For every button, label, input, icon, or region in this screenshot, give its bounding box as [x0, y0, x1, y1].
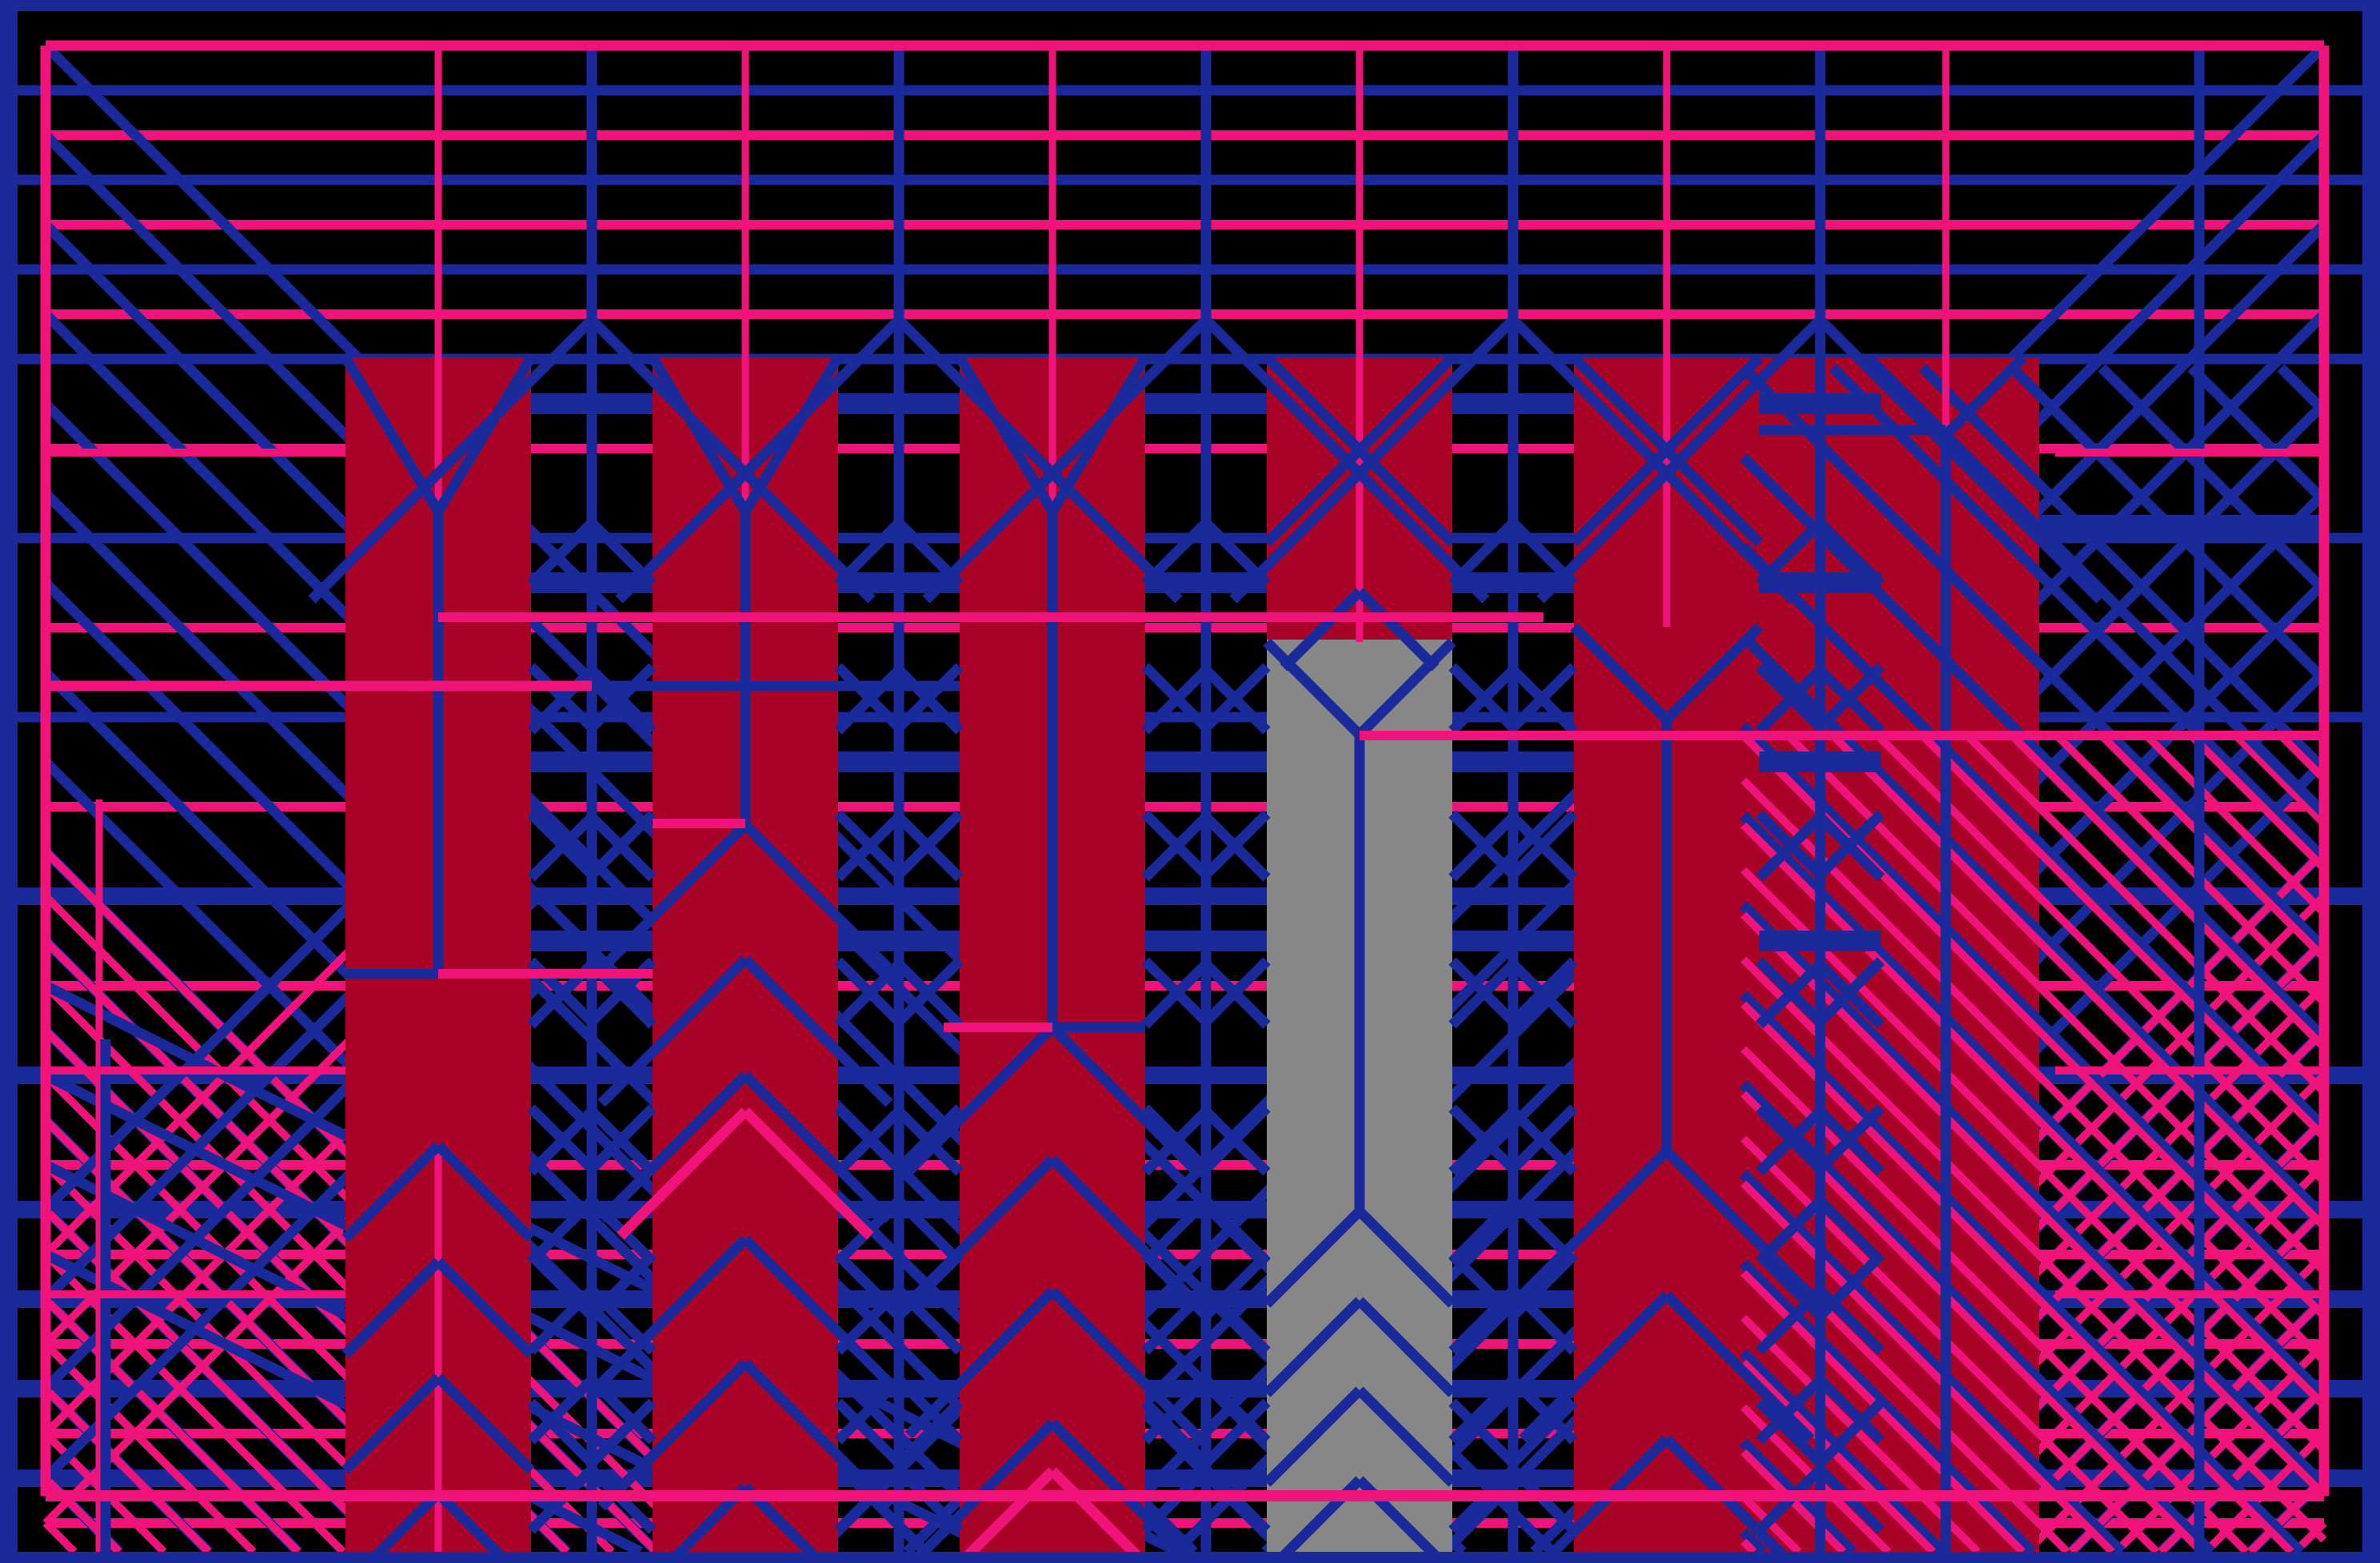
abstract-artwork-stage [0, 0, 2380, 1563]
generative-art-canvas [0, 0, 2380, 1563]
